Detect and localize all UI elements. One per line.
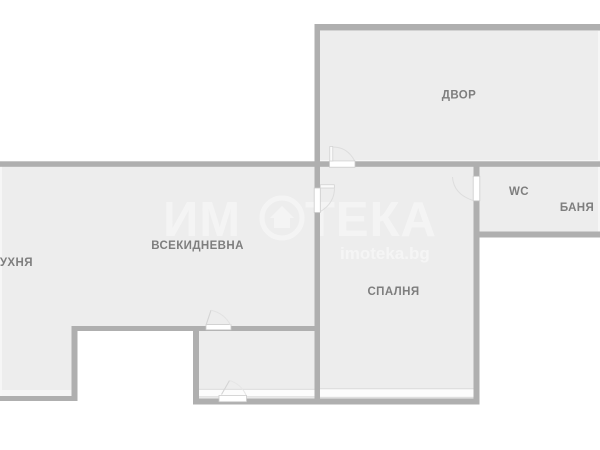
svg-text:ВСЕКИДНЕВНА: ВСЕКИДНЕВНА (151, 240, 244, 252)
svg-text:ИМ: ИМ (163, 193, 241, 247)
svg-text:ДВОР: ДВОР (442, 90, 476, 102)
svg-text:КУХНЯ: КУХНЯ (0, 257, 33, 269)
svg-text:СПАЛНЯ: СПАЛНЯ (367, 286, 419, 298)
svg-text:БАНЯ: БАНЯ (560, 202, 594, 214)
svg-text:WC: WC (509, 186, 529, 198)
svg-text:ТЕКА: ТЕКА (305, 193, 437, 247)
svg-text:imoteka.bg: imoteka.bg (340, 244, 430, 263)
